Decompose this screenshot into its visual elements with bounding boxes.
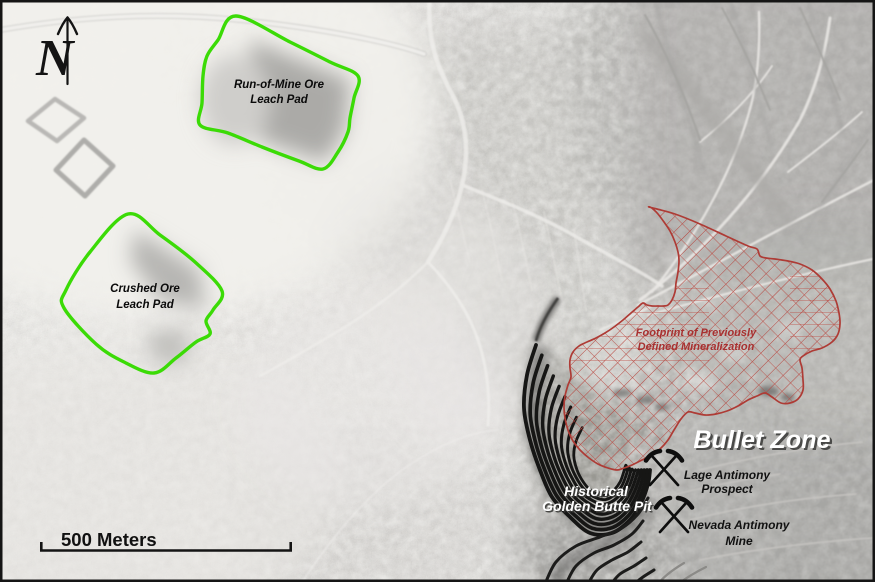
svg-text:Historical: Historical (564, 483, 629, 499)
svg-text:Lage Antimony: Lage Antimony (684, 468, 772, 482)
svg-text:Run-of-Mine Ore: Run-of-Mine Ore (234, 79, 325, 91)
svg-text:Bullet Zone: Bullet Zone (693, 426, 830, 454)
svg-text:Footprint of Previously: Footprint of Previously (636, 327, 757, 339)
svg-text:Leach Pad: Leach Pad (250, 94, 308, 106)
svg-text:Leach Pad: Leach Pad (116, 299, 174, 311)
svg-text:N: N (35, 30, 76, 87)
svg-text:Crushed Ore: Crushed Ore (110, 283, 180, 295)
svg-text:Golden Butte Pit: Golden Butte Pit (542, 498, 653, 514)
svg-text:Nevada Antimony: Nevada Antimony (689, 518, 791, 532)
svg-text:Mine: Mine (725, 534, 753, 548)
svg-text:500 Meters: 500 Meters (61, 529, 157, 550)
svg-text:Prospect: Prospect (701, 482, 753, 496)
svg-text:Defined Mineralization: Defined Mineralization (638, 341, 755, 353)
